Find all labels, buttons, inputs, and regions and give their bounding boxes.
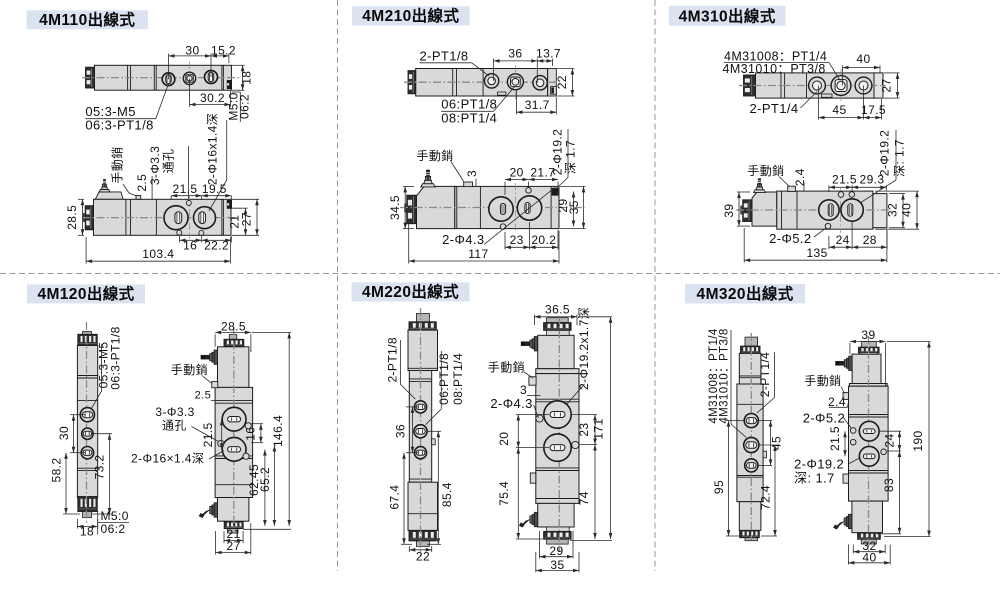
svg-text:16: 16 xyxy=(183,239,197,253)
svg-text:2.5: 2.5 xyxy=(135,174,149,192)
svg-text:2-Φ16×1.4深: 2-Φ16×1.4深 xyxy=(131,452,204,466)
svg-text:2.5: 2.5 xyxy=(195,390,212,402)
svg-text:95: 95 xyxy=(712,480,726,494)
svg-text:29: 29 xyxy=(549,544,563,558)
svg-text:28.5: 28.5 xyxy=(65,205,79,230)
svg-text:20: 20 xyxy=(510,166,524,180)
svg-text:74: 74 xyxy=(577,491,591,505)
svg-text:2-Φ5.2: 2-Φ5.2 xyxy=(769,231,811,246)
svg-text:22: 22 xyxy=(416,550,430,564)
svg-text:27: 27 xyxy=(240,212,254,226)
svg-text:2-PT1/4: 2-PT1/4 xyxy=(758,352,772,398)
svg-text:24: 24 xyxy=(836,233,850,247)
svg-text:06:3-PT1/8: 06:3-PT1/8 xyxy=(109,326,123,389)
svg-text:85.4: 85.4 xyxy=(440,482,454,507)
svg-text:171: 171 xyxy=(592,418,606,439)
svg-text:2-Φ16x1.4深: 2-Φ16x1.4深 xyxy=(206,113,220,185)
svg-text:4M31010：PT3/8: 4M31010：PT3/8 xyxy=(723,62,826,76)
svg-text:手動銷: 手動銷 xyxy=(488,359,525,374)
svg-text:83: 83 xyxy=(882,478,896,492)
svg-text:34.5: 34.5 xyxy=(388,195,402,220)
svg-text:27: 27 xyxy=(227,539,241,553)
svg-text:手動銷: 手動銷 xyxy=(110,146,125,183)
svg-text:15.2: 15.2 xyxy=(211,43,236,57)
svg-text:2-PT1/8: 2-PT1/8 xyxy=(420,49,469,64)
svg-text:23: 23 xyxy=(577,423,591,437)
svg-text:58.2: 58.2 xyxy=(50,458,64,483)
svg-text:2-Φ4.3: 2-Φ4.3 xyxy=(442,232,484,247)
svg-text:4M310出線式: 4M310出線式 xyxy=(679,6,776,25)
svg-text:06:PT1/8: 06:PT1/8 xyxy=(441,97,497,112)
svg-text:4M220出線式: 4M220出線式 xyxy=(362,282,459,301)
svg-text:40: 40 xyxy=(862,550,876,564)
svg-text:4M110出線式: 4M110出線式 xyxy=(39,10,135,29)
svg-text:通孔: 通孔 xyxy=(162,419,187,433)
svg-text:08:PT1/4: 08:PT1/4 xyxy=(451,353,465,405)
svg-text:36: 36 xyxy=(394,424,408,438)
svg-text:手動銷: 手動銷 xyxy=(804,373,841,388)
svg-text:30: 30 xyxy=(185,43,199,57)
svg-text:21.5: 21.5 xyxy=(832,173,857,187)
svg-text:30: 30 xyxy=(57,426,71,440)
svg-text:通孔: 通孔 xyxy=(162,149,176,174)
svg-text:21.5: 21.5 xyxy=(201,422,215,447)
svg-text:3: 3 xyxy=(465,170,479,177)
svg-text:40: 40 xyxy=(899,203,913,217)
svg-text:06:3-PT1/8: 06:3-PT1/8 xyxy=(85,118,153,133)
svg-text:35: 35 xyxy=(550,558,564,572)
svg-text:手動銷: 手動銷 xyxy=(171,362,208,377)
svg-text:35: 35 xyxy=(567,200,581,214)
svg-text:75.4: 75.4 xyxy=(497,481,511,506)
svg-text:36.5: 36.5 xyxy=(545,303,570,317)
svg-text:28: 28 xyxy=(863,233,877,247)
svg-text:2.4: 2.4 xyxy=(793,168,807,186)
svg-text:2-Φ19.2: 2-Φ19.2 xyxy=(878,130,892,176)
svg-text:103.4: 103.4 xyxy=(142,247,174,261)
svg-text:117: 117 xyxy=(468,247,488,261)
svg-text:67.4: 67.4 xyxy=(388,485,402,510)
svg-text:18: 18 xyxy=(240,71,254,85)
svg-text:27: 27 xyxy=(880,78,894,92)
svg-text:08:PT1/4: 08:PT1/4 xyxy=(441,111,497,126)
svg-text:06:2: 06:2 xyxy=(237,94,251,119)
svg-text:22: 22 xyxy=(555,75,569,89)
svg-text:4M120出線式: 4M120出線式 xyxy=(37,284,134,303)
svg-text:39: 39 xyxy=(722,204,736,218)
svg-text:31.7: 31.7 xyxy=(525,98,550,112)
svg-text:M5:0: M5:0 xyxy=(101,509,129,523)
svg-text:146.4: 146.4 xyxy=(271,415,285,447)
svg-text:4M320出線式: 4M320出線式 xyxy=(697,284,794,303)
svg-text:4M210出線式: 4M210出線式 xyxy=(362,6,459,25)
svg-text:18: 18 xyxy=(80,525,94,539)
svg-text:2-PT1/4: 2-PT1/4 xyxy=(750,101,799,116)
svg-text:72.4: 72.4 xyxy=(758,485,772,510)
svg-text:19.5: 19.5 xyxy=(202,182,227,196)
svg-text:2-Φ19.2: 2-Φ19.2 xyxy=(794,456,844,471)
svg-text:手動銷: 手動銷 xyxy=(417,148,454,163)
svg-text:4M31010：PT3/8: 4M31010：PT3/8 xyxy=(718,328,730,423)
svg-text:20.2: 20.2 xyxy=(531,233,556,247)
svg-text:06:PT1/8: 06:PT1/8 xyxy=(437,353,451,405)
svg-text:28.5: 28.5 xyxy=(221,319,246,333)
svg-text:45: 45 xyxy=(770,436,784,450)
svg-text:73.2: 73.2 xyxy=(93,455,107,480)
svg-text:24: 24 xyxy=(883,433,897,447)
svg-text:36: 36 xyxy=(508,47,522,61)
svg-text:40: 40 xyxy=(856,52,870,66)
svg-text:3-Φ3.3: 3-Φ3.3 xyxy=(155,405,194,419)
svg-text:2-Φ4.3: 2-Φ4.3 xyxy=(490,396,532,411)
svg-text:17.5: 17.5 xyxy=(861,103,886,117)
svg-text:22.2: 22.2 xyxy=(204,239,229,253)
svg-text:3: 3 xyxy=(520,383,527,397)
svg-text:2-Φ19.2x1.7深: 2-Φ19.2x1.7深 xyxy=(577,307,591,390)
svg-text:65.2: 65.2 xyxy=(258,467,272,492)
svg-text:2-Φ5.2: 2-Φ5.2 xyxy=(803,411,845,426)
svg-text:深: 1.7: 深: 1.7 xyxy=(893,139,907,177)
svg-text:20: 20 xyxy=(497,432,511,446)
svg-text:手動銷: 手動銷 xyxy=(747,163,784,178)
svg-text:2.4: 2.4 xyxy=(828,395,846,409)
svg-text:190: 190 xyxy=(911,430,925,451)
svg-text:135: 135 xyxy=(806,246,827,260)
svg-text:2-PT1/8: 2-PT1/8 xyxy=(385,337,399,383)
svg-text:32: 32 xyxy=(885,203,899,217)
svg-text:13.7: 13.7 xyxy=(536,47,561,61)
svg-text:23: 23 xyxy=(510,233,524,247)
svg-text:21.5: 21.5 xyxy=(173,182,198,196)
svg-text:06:2: 06:2 xyxy=(101,522,126,536)
svg-text:2-Φ19.2: 2-Φ19.2 xyxy=(551,129,565,175)
svg-text:21.5: 21.5 xyxy=(828,426,842,451)
svg-text:3-Φ3.3: 3-Φ3.3 xyxy=(148,146,162,185)
svg-text:30.2: 30.2 xyxy=(200,91,225,105)
svg-text:39: 39 xyxy=(861,328,875,342)
svg-text:16: 16 xyxy=(244,427,258,441)
svg-text:深: 1.7: 深: 1.7 xyxy=(794,470,835,485)
svg-text:45: 45 xyxy=(832,103,846,117)
svg-text:深 1.7: 深 1.7 xyxy=(564,140,578,174)
